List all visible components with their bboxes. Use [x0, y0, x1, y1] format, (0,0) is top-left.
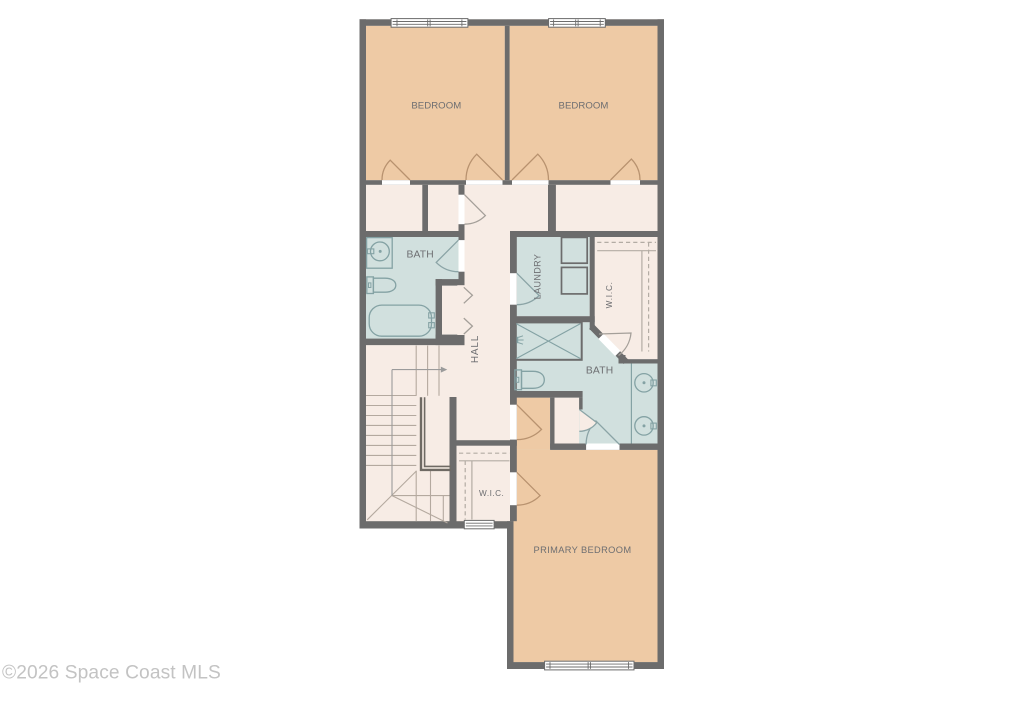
svg-text:LAUNDRY: LAUNDRY — [532, 254, 542, 300]
svg-text:©2026 Space Coast MLS: ©2026 Space Coast MLS — [2, 663, 221, 684]
svg-text:BATH: BATH — [586, 365, 614, 376]
svg-text:PRIMARY BEDROOM: PRIMARY BEDROOM — [534, 545, 632, 555]
svg-text:BEDROOM: BEDROOM — [559, 100, 609, 111]
svg-text:HALL: HALL — [470, 335, 481, 363]
svg-text:W.I.C.: W.I.C. — [605, 281, 614, 308]
svg-text:BEDROOM: BEDROOM — [411, 100, 461, 111]
svg-text:W.I.C.: W.I.C. — [479, 489, 504, 498]
svg-text:BATH: BATH — [406, 250, 434, 261]
